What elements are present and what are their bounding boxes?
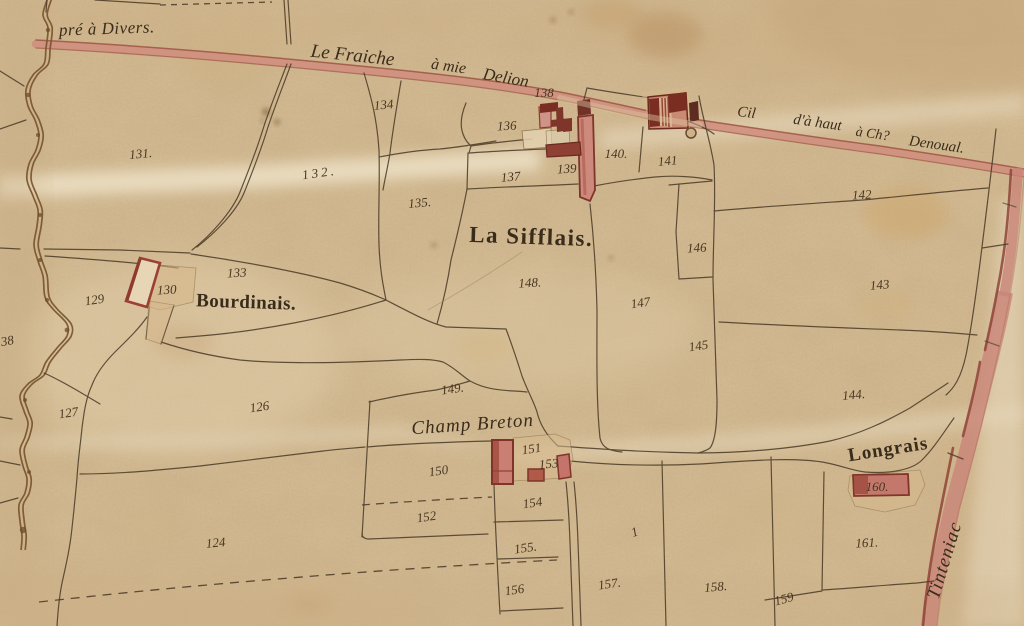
svg-text:160.: 160. — [866, 479, 889, 494]
svg-text:150: 150 — [428, 462, 450, 480]
svg-text:135.: 135. — [408, 194, 432, 211]
svg-text:133: 133 — [227, 264, 248, 280]
svg-text:131.: 131. — [129, 145, 153, 162]
svg-text:Bourdinais.: Bourdinais. — [196, 290, 297, 314]
svg-text:153: 153 — [538, 455, 559, 472]
svg-text:158.: 158. — [704, 578, 728, 595]
svg-text:130: 130 — [157, 281, 178, 297]
svg-text:148.: 148. — [518, 274, 542, 290]
svg-text:129: 129 — [84, 291, 106, 309]
svg-text:142: 142 — [852, 186, 873, 202]
svg-text:144.: 144. — [842, 386, 866, 403]
svg-text:155.: 155. — [513, 539, 538, 557]
svg-text:pré à Divers.: pré à Divers. — [58, 17, 155, 39]
svg-text:147: 147 — [630, 294, 652, 312]
svg-text:145: 145 — [688, 337, 710, 355]
svg-text:161.: 161. — [855, 534, 879, 550]
svg-text:156: 156 — [504, 581, 526, 599]
svg-text:124: 124 — [205, 534, 226, 551]
svg-text:154: 154 — [522, 494, 544, 512]
svg-text:141: 141 — [657, 152, 678, 169]
svg-text:Cil: Cil — [736, 104, 756, 122]
svg-text:151: 151 — [521, 440, 542, 458]
svg-text:143: 143 — [869, 276, 890, 293]
svg-text:La Sifflais.: La Sifflais. — [469, 222, 594, 251]
svg-text:138: 138 — [534, 85, 554, 100]
svg-text:139: 139 — [557, 160, 578, 176]
svg-text:146: 146 — [687, 239, 708, 255]
svg-text:157.: 157. — [597, 575, 622, 593]
svg-text:134: 134 — [373, 96, 394, 113]
svg-text:127: 127 — [58, 404, 80, 422]
svg-text:136: 136 — [497, 117, 518, 133]
svg-text:140.: 140. — [605, 146, 628, 161]
svg-text:152: 152 — [416, 508, 438, 526]
svg-text:137: 137 — [500, 168, 521, 185]
svg-text:126: 126 — [249, 398, 271, 416]
svg-text:149.: 149. — [440, 380, 465, 398]
